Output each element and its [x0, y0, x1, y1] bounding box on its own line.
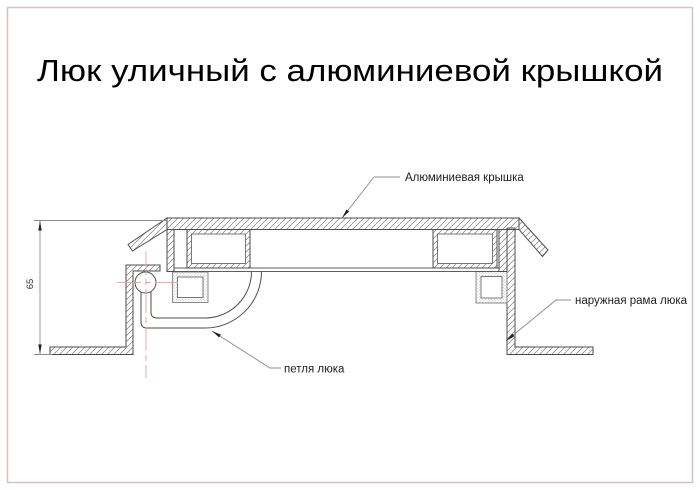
- cover-box-left: [187, 230, 250, 269]
- label-cover: Алюминиевая крышка: [405, 172, 524, 184]
- cover-left-wall: [167, 230, 174, 272]
- label-frame: наружная рама люка: [575, 295, 688, 307]
- support-tube-right: [476, 272, 507, 304]
- cover-box-right: [433, 230, 497, 269]
- support-tube-left: [173, 272, 209, 303]
- dimension-value: 65: [25, 279, 36, 290]
- technical-drawing-svg: Люк уличный с алюминиевой крышкой: [0, 0, 700, 490]
- cover-bottom-sheet: [174, 268, 499, 272]
- label-hinge: петля люка: [284, 364, 345, 376]
- drawing-title: Люк уличный с алюминиевой крышкой: [37, 53, 663, 88]
- cover-right-wall: [499, 230, 507, 272]
- cover-top-plate: [167, 218, 519, 230]
